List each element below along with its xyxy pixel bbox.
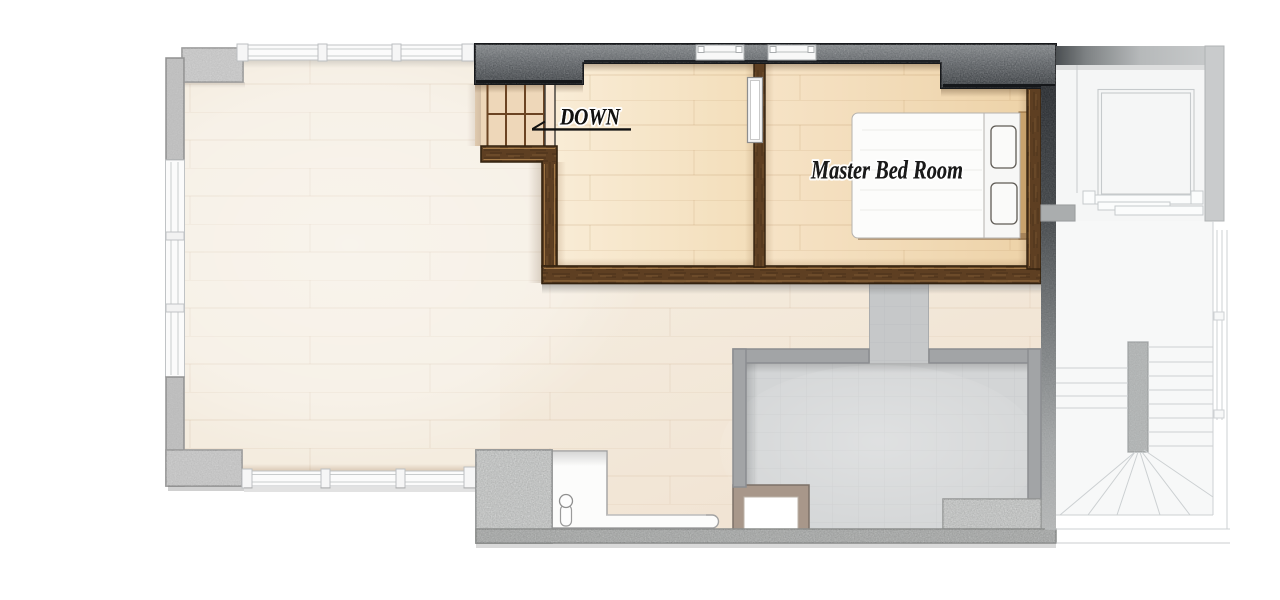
svg-text:Master Bed Room: Master Bed Room: [810, 156, 963, 185]
svg-text:DOWN: DOWN: [559, 105, 621, 130]
